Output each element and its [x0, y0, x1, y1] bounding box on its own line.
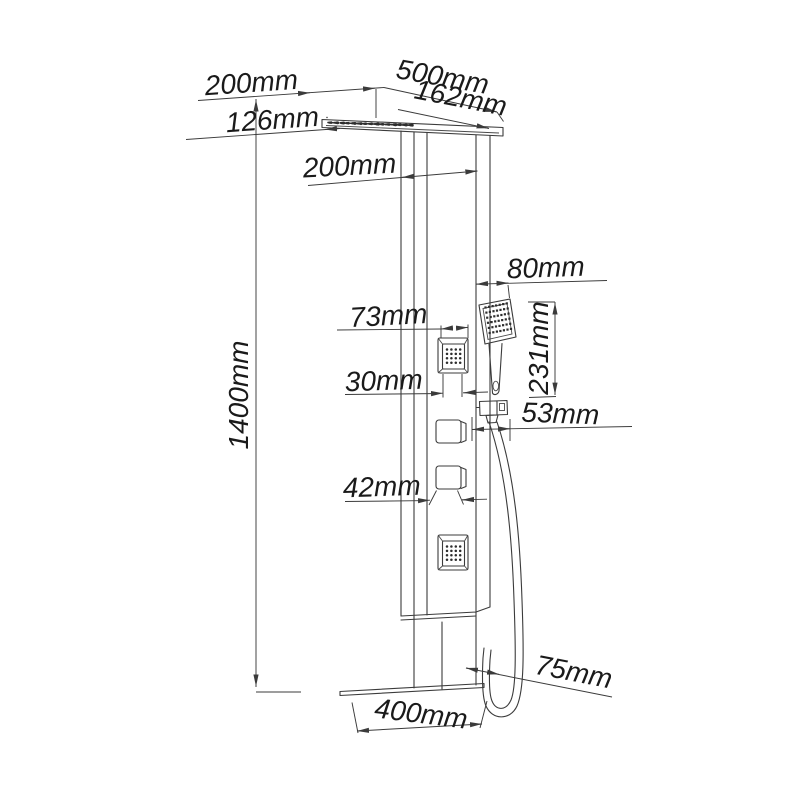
ext-line-knob-right [458, 491, 464, 505]
body-jet-nozzle-dot [446, 353, 449, 356]
body-jet-nozzle-dot [459, 558, 462, 561]
hand-shower-nozzle-dot [492, 305, 494, 307]
body-jet-nozzle-dot [450, 554, 453, 557]
hand-shower-nozzle-dot [491, 326, 493, 328]
rain-head-nozzle-dot [341, 122, 343, 124]
dim-label-total-height: 1400mm [223, 341, 254, 450]
body-jet-nozzle-dot [455, 353, 458, 356]
rain-head-nozzle-dot [384, 123, 386, 125]
body-jet-nozzle-dot [459, 357, 462, 360]
hand-shower-nozzle-dot [493, 315, 495, 317]
dim-label-jet-face-width: 30mm [344, 364, 423, 398]
body-jet-nozzle-dot [450, 348, 453, 351]
body-jet-upper-face [443, 344, 465, 369]
body-jet-upper-nozzles [446, 348, 462, 364]
hand-shower-nozzle-dot [507, 313, 509, 315]
hand-shower-nozzle-dot [489, 332, 491, 334]
dim-arrow [456, 327, 468, 328]
body-jet-nozzle-dot [455, 545, 458, 548]
hand-shower-handle-tip [493, 381, 499, 391]
body-jet-nozzle-dot [450, 361, 453, 364]
body-jet-nozzle-dot [446, 357, 449, 360]
dim-label-nozzle-offset: 126mm [225, 101, 320, 138]
hand-shower-nozzle-dot [495, 304, 497, 306]
body-jet-nozzle-dot [455, 361, 458, 364]
body-jet-nozzle-dot [455, 554, 458, 557]
body-jet-nozzle-dot [459, 353, 462, 356]
hand-shower-nozzle-dot [507, 307, 509, 309]
hand-shower-nozzle-dot [495, 325, 497, 327]
rain-shower-head [322, 117, 503, 136]
knob-upper-face [436, 420, 461, 443]
body-jet-nozzle-dot [459, 361, 462, 364]
hand-shower-handle [489, 344, 502, 395]
hand-shower-nozzle-dot [489, 311, 491, 313]
dim-arrow [441, 328, 453, 329]
rain-head-nozzle-dot [326, 117, 327, 118]
body-jet-nozzle-dot [459, 545, 462, 548]
dim-label-top-offset: 200mm [203, 64, 299, 102]
body-jet-lower-face [443, 541, 465, 566]
body-jet-nozzle-dot [446, 550, 449, 553]
dim-label-handshower-height: 231mm [523, 301, 554, 395]
body-jet-nozzle-dot [446, 554, 449, 557]
dim-label-column-width: 200mm [301, 148, 397, 184]
hand-shower-nozzle-dot [509, 323, 511, 325]
hand-shower-nozzle-dot [496, 331, 498, 333]
body-jet-nozzle-dot [450, 558, 453, 561]
hand-shower-nozzle-dot [499, 309, 501, 311]
knob-lower-face [436, 466, 461, 489]
holder-hose-coupler [486, 415, 498, 423]
dimension-labels: 200mm 500mm 126mm 162mm 200mm 1400mm 73m… [203, 53, 615, 734]
hand-shower-nozzle-dot [488, 306, 490, 308]
hand-shower-holder [476, 401, 508, 416]
dim-arrow [363, 88, 375, 89]
hand-shower-nozzle-dot [506, 323, 508, 325]
body-jet-nozzle-dot [455, 550, 458, 553]
hand-shower-nozzle-dot [499, 304, 501, 306]
drawing-canvas: 200mm 500mm 126mm 162mm 200mm 1400mm 73m… [0, 0, 800, 800]
tub-spout-shelf [340, 684, 484, 696]
hand-shower-nozzle-dot [491, 321, 493, 323]
hand-shower-nozzle-dot [488, 327, 490, 329]
hose-inner-edge [489, 422, 515, 708]
hand-shower-nozzle-dot [508, 318, 510, 320]
rain-head-nozzle-dot [336, 121, 339, 124]
knob-upper-side [461, 422, 466, 443]
hand-shower-nozzle-dot [484, 306, 486, 308]
hand-shower-nozzle-dot [490, 316, 492, 318]
hand-shower-nozzle-dot [492, 310, 494, 312]
hand-shower-nozzle-dot [498, 320, 500, 322]
panel-column [401, 131, 490, 689]
dim-arrow [298, 93, 310, 94]
dim-label-holder-width: 53mm [521, 397, 600, 431]
rain-head-nozzle-dot [346, 122, 348, 124]
hand-shower-nozzle-dot [485, 312, 487, 314]
body-jet-nozzle-dot [455, 558, 458, 561]
body-jet-nozzle-dot [455, 348, 458, 351]
hand-shower-nozzle-dot [487, 322, 489, 324]
dim-label-handshower-width: 80mm [506, 251, 585, 285]
rain-head-nozzle-dot [369, 123, 371, 125]
rain-head-nozzle-dot [389, 124, 391, 126]
holder-button [500, 404, 505, 411]
rain-head-nozzle-dot [381, 123, 384, 126]
body-jet-nozzle-dot [450, 550, 453, 553]
spout-shelf-outline [340, 684, 484, 696]
diverter-knob-lower [436, 466, 466, 489]
rain-head-nozzle-dot [351, 122, 353, 124]
body-jet-nozzle-dot [450, 357, 453, 360]
body-jet-nozzle-dot [459, 554, 462, 557]
body-jet-nozzle-dot [459, 550, 462, 553]
rain-head-nozzle-dot [356, 122, 358, 124]
rain-head-nozzle-dot [364, 122, 367, 125]
hand-shower-nozzle-dot [503, 329, 505, 331]
hand-shower-nozzle-dot [498, 325, 500, 327]
hand-shower-nozzle-dot [497, 315, 499, 317]
rain-head-nozzle-dot [397, 124, 399, 126]
hand-shower-nozzle-dot [501, 319, 503, 321]
body-jet-lower-nozzles [446, 545, 462, 561]
body-jet-nozzle-dot [446, 361, 449, 364]
body-jet-nozzle-dot [446, 558, 449, 561]
body-jet-nozzle-dot [459, 348, 462, 351]
hand-shower-nozzle-dot [506, 329, 508, 331]
dim-label-knob-width: 42mm [342, 470, 421, 504]
hand-shower-nozzle-dot [510, 328, 512, 330]
rain-head-nozzle-dot [376, 123, 379, 126]
hand-shower-nozzle-dot [486, 317, 488, 319]
ext-line-handshower-right [508, 285, 510, 298]
hand-shower-nozzle-dot [504, 313, 506, 315]
ext-line-knob-left [429, 491, 437, 506]
rain-head-nozzle-dot [333, 122, 335, 124]
body-jet-nozzle-dot [446, 348, 449, 351]
hand-shower-nozzle-dot [496, 310, 498, 312]
dim-label-spout-length: 400mm [373, 692, 469, 734]
dim-arrow [487, 672, 499, 674]
rain-head-nozzle-dot [409, 124, 411, 126]
rain-head-nozzle-dot [361, 123, 363, 125]
ext-line-spout-left [352, 703, 358, 734]
body-jet-nozzle-dot [450, 545, 453, 548]
rain-head-nozzle-dot [386, 123, 388, 125]
rain-head-nozzle-dot [394, 123, 397, 126]
rain-head-nozzle-dot [328, 122, 330, 124]
hand-shower [476, 299, 516, 423]
dim-arrow [402, 176, 414, 177]
body-jet-nozzle-dot [455, 357, 458, 360]
hand-shower-nozzle-dot [494, 320, 496, 322]
rain-head-nozzle-dot [391, 124, 393, 126]
rain-head-outline [322, 120, 503, 137]
shower-panel-dimension-drawing: 200mm 500mm 126mm 162mm 200mm 1400mm 73m… [0, 0, 800, 800]
dim-label-spout-depth: 75mm [533, 649, 615, 694]
rain-head-nozzle-dot [331, 122, 332, 123]
rain-head-nozzle-dot [404, 124, 407, 127]
rain-head-nozzle-dot [374, 123, 376, 125]
rain-head-nozzle-dot [344, 122, 346, 124]
diverter-knob-upper [436, 420, 466, 443]
body-jet-nozzle-dot [450, 353, 453, 356]
body-jet-nozzle-dot [446, 545, 449, 548]
hand-shower-nozzle-dot [502, 324, 504, 326]
hand-shower-nozzle-dot [499, 330, 501, 332]
body-jet-upper [438, 338, 468, 373]
dim-arrow [476, 284, 488, 285]
hand-shower-nozzle-dot [492, 331, 494, 333]
body-jet-lower [438, 535, 468, 570]
hand-shower-nozzle-dot [502, 303, 504, 305]
hand-shower-nozzle-dot [506, 302, 508, 304]
hand-shower-nozzle-dot [503, 308, 505, 310]
rain-head-nozzle-dot [402, 124, 404, 126]
knob-lower-side [461, 468, 466, 489]
dim-arrow [325, 129, 338, 130]
rain-head-nozzle-dot [349, 122, 350, 123]
dim-label-jet-width: 73mm [349, 298, 428, 333]
hand-shower-nozzle-dot [500, 314, 502, 316]
hand-shower-nozzle-dot [505, 318, 507, 320]
